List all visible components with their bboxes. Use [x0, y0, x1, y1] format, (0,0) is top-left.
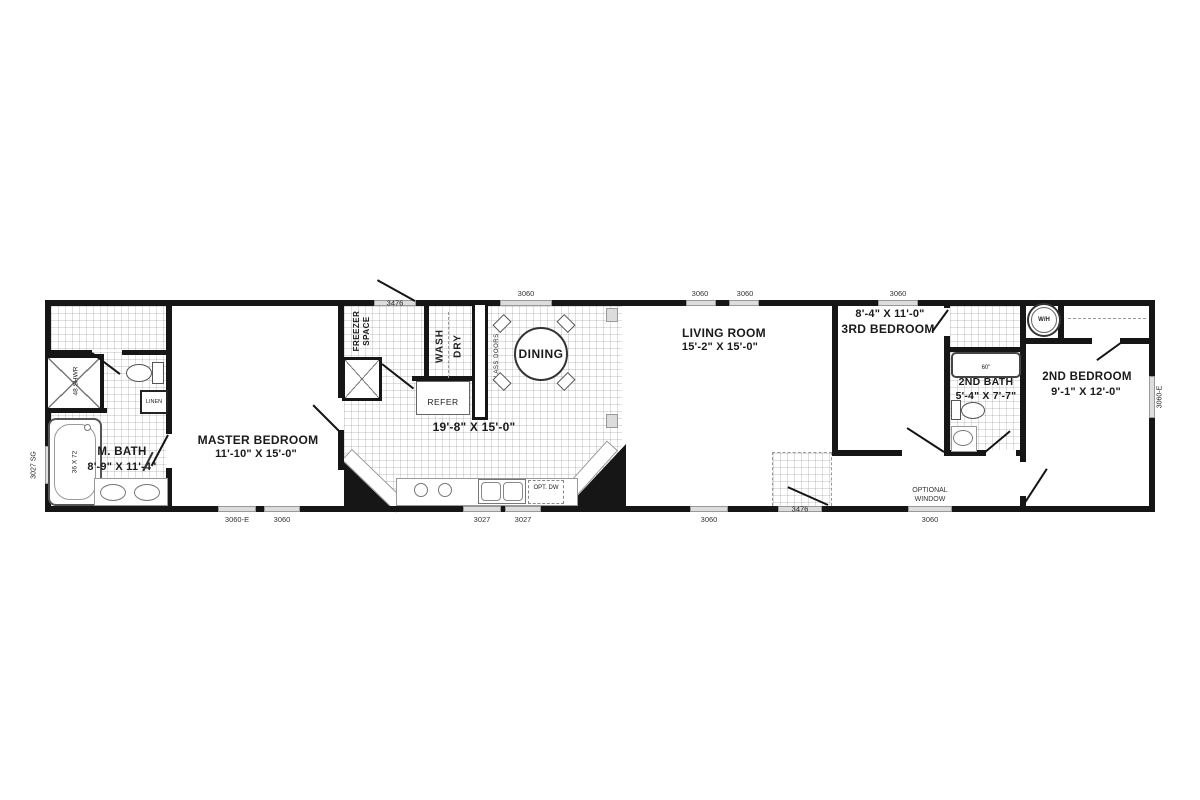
window-label: 3060 [701, 515, 718, 524]
closet-rod-line [1068, 318, 1146, 319]
second-bedroom-door-leaf [1023, 468, 1048, 504]
third-bedroom-closet-door-leaf [931, 309, 948, 332]
vanity-sink [100, 484, 126, 501]
window [463, 506, 501, 512]
window [690, 506, 728, 512]
wall-secondbedroom-closet [1064, 338, 1092, 344]
window-label: 3060-E [225, 515, 249, 524]
rear-door-label: 3476 [792, 505, 809, 514]
refer-label: REFER [427, 397, 458, 407]
range-burner-icon [438, 483, 452, 497]
wall-thirdbedroom-bath [944, 336, 950, 456]
wall-exterior-bottom [45, 506, 1155, 512]
utility-shower [342, 357, 382, 401]
dishwasher-optional [528, 480, 564, 504]
half-wall-column [606, 308, 618, 322]
second-bath-dims: 5'-4" X 7'-7" [956, 390, 1017, 402]
tub-faucet-icon [84, 424, 91, 431]
entry-door-label: 3476 [387, 299, 404, 308]
optional-window-note: OPTIONAL WINDOW [898, 486, 962, 504]
linen-label: LINEN [146, 399, 162, 405]
window-label: 3060-E [1157, 386, 1164, 409]
washdry-divider [448, 312, 449, 378]
second-bedroom-dims: 9'-1" X 12'-0" [1051, 386, 1121, 398]
toilet-bowl [961, 402, 985, 419]
wall-master-closet [122, 350, 166, 355]
wall-hall-top [832, 450, 902, 456]
master-tub-label: 36 X 72 [72, 451, 79, 473]
wall-shower [45, 408, 107, 413]
window [505, 506, 541, 512]
vanity-sink [953, 430, 973, 446]
opt-dw-label: OPT. DW [534, 485, 559, 491]
window [500, 300, 552, 306]
window-label: 3027 [474, 515, 491, 524]
third-bedroom-dims: 8'-4" X 11'-0" [855, 308, 924, 320]
wall-bath-secondbedroom [1020, 300, 1026, 462]
master-bedroom-name: MASTER BEDROOM [198, 433, 319, 447]
sink-basin [481, 482, 501, 501]
dry-label: DRY [453, 334, 464, 358]
second-tub-label: 60" [982, 365, 991, 371]
second-bedroom-name: 2ND BEDROOM [1042, 371, 1132, 383]
toilet-tank [152, 362, 164, 384]
wall-exterior-top [45, 300, 1155, 306]
entry-landing-floor [772, 452, 832, 506]
freezer-space-label: FREEZER SPACE [352, 303, 372, 359]
master-bedroom-door-leaf [312, 404, 340, 432]
third-bedroom-closet-floor [950, 306, 1020, 347]
master-bedroom-dims: 11'-10" X 15'-0" [215, 448, 297, 460]
window [878, 300, 918, 306]
wash-label: WASH [435, 329, 446, 363]
window-label: 3027 [515, 515, 532, 524]
wall-secondbedroom-closet [1120, 338, 1150, 344]
window-label: 3060 [518, 289, 535, 298]
window-optional [908, 506, 952, 512]
toilet-bowl [126, 364, 152, 382]
window-label: 3060 [692, 289, 709, 298]
window [264, 506, 300, 512]
window-label: 3060 [922, 515, 939, 524]
window-label: 3027 SG [31, 451, 38, 479]
wall-living-thirdbedroom [832, 300, 838, 456]
floor-plan-canvas: OPT. DW 3476 3060 3060 3060 3060 3060-E … [0, 0, 1200, 800]
window [1149, 376, 1155, 418]
water-heater-label: W/H [1038, 317, 1050, 323]
window-label: 3060 [737, 289, 754, 298]
wall-masterbedroom-kitchen [338, 430, 344, 470]
master-bath-name: M. BATH [97, 446, 146, 458]
range-burner-icon [414, 483, 428, 497]
third-bedroom-name: 3RD BEDROOM [841, 322, 934, 336]
half-wall-column [606, 414, 618, 428]
glass-doors-cabinet [472, 302, 488, 420]
second-bath-name: 2ND BATH [959, 376, 1014, 388]
window [729, 300, 759, 306]
dining-label: DINING [519, 347, 564, 361]
toilet-tank [951, 400, 961, 420]
kitchen-dims: 19'-8" X 15'-0" [433, 420, 516, 434]
window-label: 3060 [890, 289, 907, 298]
wall-washdry [424, 300, 429, 388]
living-room-name: LIVING ROOM [682, 326, 766, 340]
second-bedroom-closet-door-leaf [1096, 341, 1122, 361]
vanity-sink [134, 484, 160, 501]
living-room-dims: 15'-2" X 15'-0" [682, 341, 758, 353]
master-closet-floor [51, 306, 166, 350]
window-label: 3060 [274, 515, 291, 524]
window [686, 300, 716, 306]
window [218, 506, 256, 512]
master-shower-label: 48 SHWR [73, 367, 80, 396]
third-bedroom-door-leaf [907, 427, 945, 453]
wall-thirdbedroom-bath [944, 300, 950, 308]
sink-basin [503, 482, 523, 501]
